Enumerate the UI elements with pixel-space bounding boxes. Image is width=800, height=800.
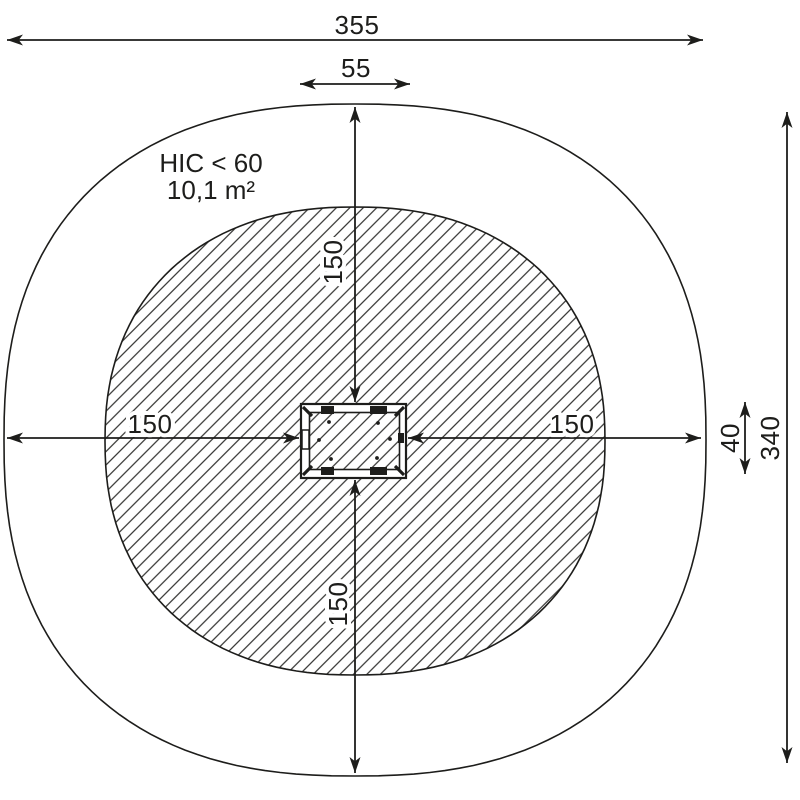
- dim-clearance-right-label: 150: [550, 409, 595, 439]
- equipment-latch-right: [398, 433, 404, 443]
- dim-clearance-bottom-label: 150: [323, 582, 353, 627]
- fixing-dot: [388, 437, 392, 441]
- equipment-tab: [370, 467, 387, 475]
- equipment-tab: [321, 467, 334, 475]
- equipment-footprint: [301, 404, 406, 478]
- dim-equipment-height-label: 40: [715, 423, 745, 453]
- fixing-dot: [329, 457, 333, 461]
- dim-total-height-label: 340: [755, 416, 785, 461]
- equipment-latch-left: [302, 430, 309, 449]
- dim-equipment-width-label: 55: [341, 53, 371, 83]
- drawing-canvas: 355 55 150 150 150 150 40 340 HIC < 60 1…: [0, 0, 800, 800]
- dim-clearance-top-label: 150: [318, 240, 348, 285]
- fixing-dot: [317, 438, 321, 442]
- fixing-dot: [375, 456, 379, 460]
- fixing-dot: [376, 421, 380, 425]
- dim-clearance-left-label: 150: [128, 409, 173, 439]
- annotations: HIC < 60 10,1 m²: [159, 148, 262, 205]
- fixing-dot: [327, 420, 331, 424]
- equipment-inner-frame: [310, 413, 400, 470]
- hic-label: HIC < 60: [159, 148, 262, 178]
- dim-total-width-label: 355: [335, 10, 380, 40]
- safety-zone-drawing: 355 55 150 150 150 150 40 340 HIC < 60 1…: [0, 0, 800, 800]
- equipment-tab: [321, 406, 334, 414]
- area-label: 10,1 m²: [167, 175, 255, 205]
- equipment-tab: [370, 406, 387, 414]
